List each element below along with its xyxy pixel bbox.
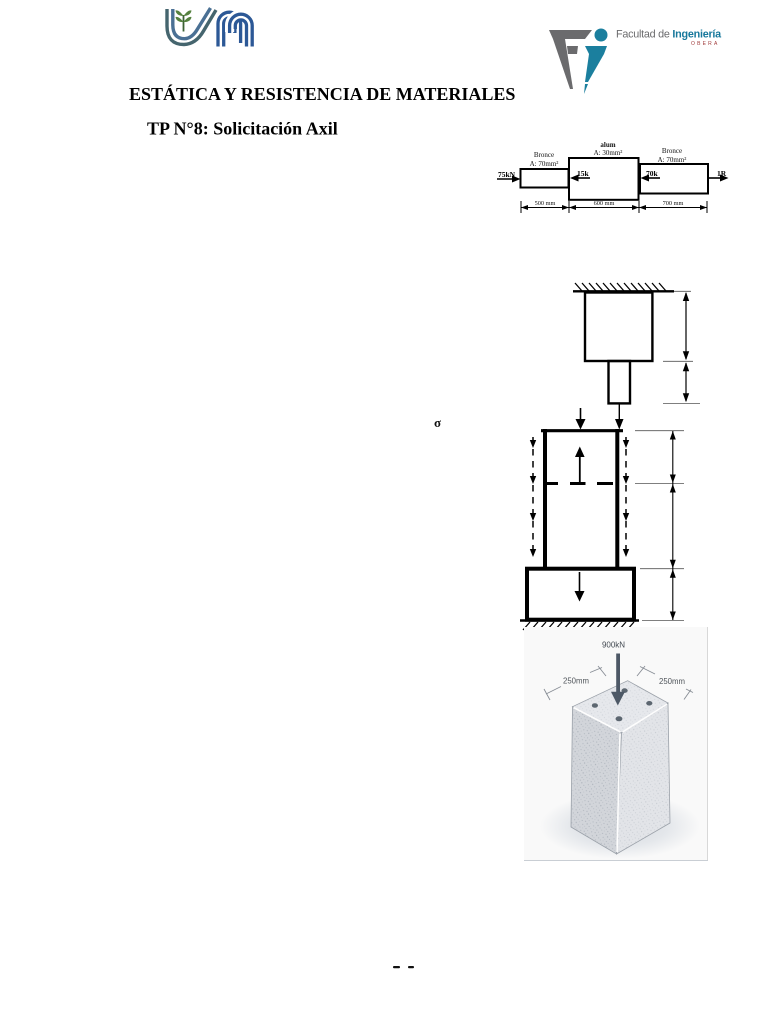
svg-text:A: 30mm²: A: 30mm² — [594, 149, 623, 157]
svg-text:alum: alum — [600, 141, 615, 149]
svg-text:600 mm: 600 mm — [594, 200, 615, 207]
svg-text:15k: 15k — [577, 169, 590, 178]
svg-text:A: 70mm²: A: 70mm² — [530, 160, 559, 168]
svg-text:σ: σ — [434, 415, 441, 430]
svg-text:500 mm: 500 mm — [535, 200, 556, 207]
svg-text:Bronce: Bronce — [662, 147, 682, 155]
svg-text:ESTÁTICA Y RESISTENCIA DE MATE: ESTÁTICA Y RESISTENCIA DE MATERIALES — [129, 83, 515, 104]
svg-text:250mm: 250mm — [563, 677, 589, 686]
svg-text:70k: 70k — [646, 169, 659, 178]
svg-text:900kN: 900kN — [602, 641, 625, 650]
svg-text:Bronce: Bronce — [534, 151, 554, 159]
svg-text:OBERA: OBERA — [691, 41, 720, 47]
svg-text:A: 70mm²: A: 70mm² — [658, 156, 687, 164]
svg-text:700 mm: 700 mm — [663, 200, 684, 207]
svg-text:250mm: 250mm — [659, 677, 685, 686]
svg-text:1R: 1R — [717, 169, 727, 178]
svg-text:TP N°8: Solicitación Axil: TP N°8: Solicitación Axil — [147, 119, 338, 139]
svg-text:75kN: 75kN — [498, 170, 516, 179]
svg-text:Facultad de Ingeniería: Facultad de Ingeniería — [616, 28, 722, 40]
